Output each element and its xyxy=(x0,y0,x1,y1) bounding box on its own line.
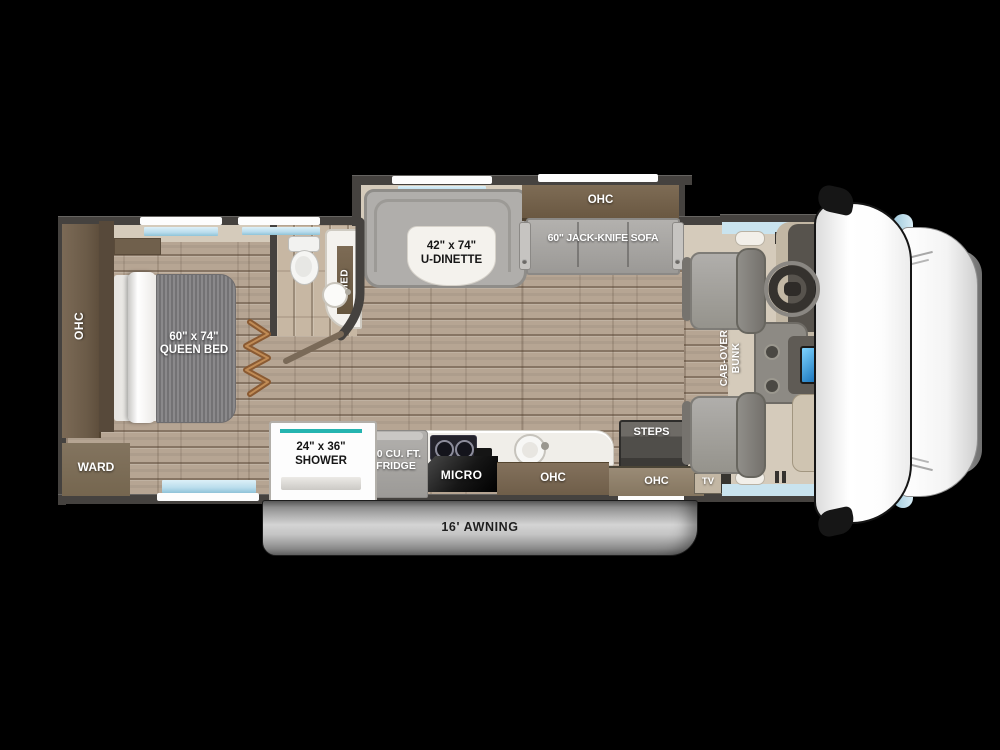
bed-headboard xyxy=(99,221,114,432)
bathroom-window-slot xyxy=(280,217,320,225)
wall-bathroom-divider xyxy=(270,222,277,336)
sofa-seam-1 xyxy=(577,222,579,267)
shower-pan xyxy=(281,477,361,490)
bed-head-shelf xyxy=(114,238,161,255)
shower-size: 24" x 36" xyxy=(296,441,345,453)
cab-door-hinge-bottom-1 xyxy=(775,471,779,483)
wall-slideout-left xyxy=(352,175,361,226)
bedroom-rear-window-slot xyxy=(157,493,259,501)
cab-over-bunk-label: CAB-OVER BUNK xyxy=(719,310,759,406)
bedroom-rear-window-glass xyxy=(162,480,256,493)
console-knob-2 xyxy=(764,378,780,394)
toilet-bowl xyxy=(290,250,319,285)
entry-ohc-label: OHC xyxy=(609,475,704,488)
cab-door-handle-top xyxy=(735,231,765,246)
cab-window-bottom xyxy=(722,484,818,496)
cab-door-hinge-bottom-2 xyxy=(782,471,786,483)
awning-label: 16' AWNING xyxy=(263,520,697,535)
queen-bed-name: QUEEN BED xyxy=(160,344,228,356)
bedroom-ohc-label: OHC xyxy=(73,276,87,376)
hood-crease-top-2 xyxy=(911,259,929,265)
dinette-name: U-DINETTE xyxy=(421,254,482,266)
shower-teal-accent xyxy=(280,429,362,433)
microwave-label: MICRO xyxy=(425,469,498,483)
microwave: MICRO xyxy=(425,456,498,492)
cab-over-front-cap xyxy=(814,202,912,524)
queen-bed-label: 60" x 74" QUEEN BED xyxy=(142,331,246,357)
bedroom-ohc-cabinet: OHC xyxy=(62,224,101,438)
entry-steps-label: STEPS xyxy=(621,426,682,439)
awning: 16' AWNING xyxy=(262,500,698,556)
wardrobe: WARD xyxy=(62,443,130,496)
hood-crease-bottom-2 xyxy=(911,457,929,463)
tv: TV xyxy=(694,473,722,494)
kitchen-sink-basin xyxy=(522,442,538,458)
kitchen-ohc-label: OHC xyxy=(497,472,609,485)
shower: 24" x 36" SHOWER xyxy=(269,421,377,504)
shower-name: SHOWER xyxy=(295,455,347,467)
wardrobe-label: WARD xyxy=(62,461,130,475)
toilet-bowl-inner xyxy=(295,256,312,277)
fridge-line2: FRIDGE xyxy=(376,460,416,472)
bedroom-window-glass-1 xyxy=(144,227,218,236)
sofa-ohc-cabinet: OHC xyxy=(522,185,679,221)
cab-over-bunk-line2: BUNK xyxy=(731,343,742,374)
dinette-label: 42" x 74" U-DINETTE xyxy=(408,240,495,268)
jack-knife-sofa-label: 60" JACK-KNIFE SOFA xyxy=(524,232,682,244)
tv-label: TV xyxy=(695,477,721,488)
bedroom-window-slot-1 xyxy=(140,217,222,225)
fridge-line1: 10 CU. FT. xyxy=(371,448,421,460)
sofa-window-slot xyxy=(538,174,658,182)
entry-steps: STEPS xyxy=(619,420,688,472)
kitchen-ohc-cabinet: OHC xyxy=(497,462,609,495)
dinette-size: 42" x 74" xyxy=(427,240,476,252)
sofa-seam-2 xyxy=(627,222,629,267)
console-knob-1 xyxy=(764,344,780,360)
bathroom-window-glass xyxy=(282,227,320,235)
cab-over-bunk-line1: CAB-OVER xyxy=(719,330,730,387)
sofa-end-cap-left xyxy=(519,222,531,270)
stove-control xyxy=(474,448,492,457)
sofa-ohc-label: OHC xyxy=(522,194,679,207)
shower-label: 24" x 36" SHOWER xyxy=(271,441,371,469)
jack-knife-sofa: 60" JACK-KNIFE SOFA xyxy=(526,218,680,275)
queen-bed-size: 60" x 74" xyxy=(169,331,218,343)
dinette-window-slot xyxy=(392,176,492,184)
bath-sink xyxy=(322,282,348,308)
dinette-table: 42" x 74" U-DINETTE xyxy=(407,226,496,286)
rv-floorplan: OHC 60" x 74" QUEEN BED WARD MED 42" x 7… xyxy=(0,0,1000,750)
